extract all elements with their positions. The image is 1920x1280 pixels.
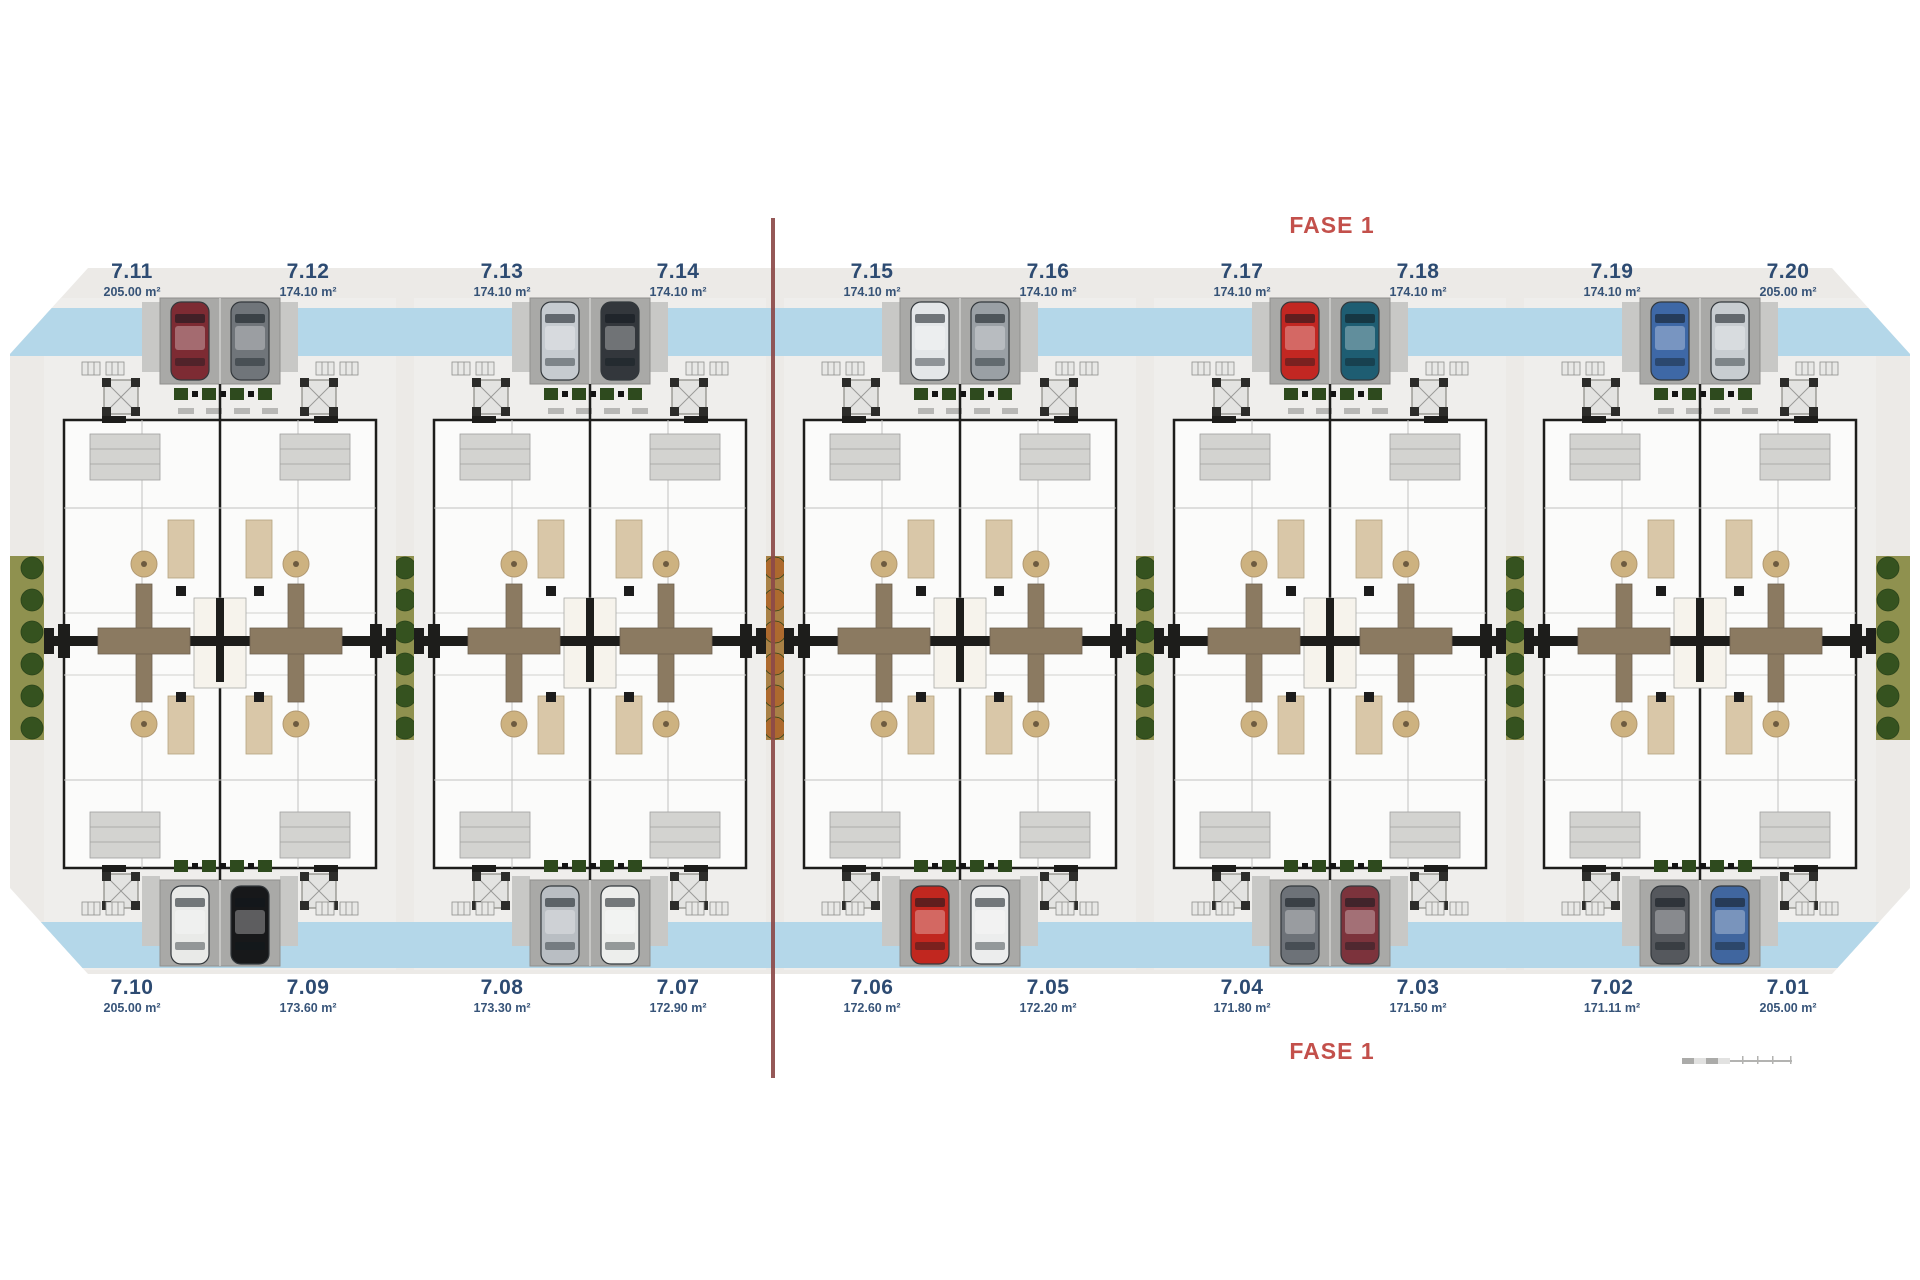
olive-landscape-strip [1506,556,1524,740]
room-furniture [650,812,720,858]
sun-lounger-icon [686,362,704,375]
sun-lounger-icon [1450,362,1468,375]
sun-lounger-icon [316,362,334,375]
room-furniture [1760,812,1830,858]
unit-area: 171.80 m² [1172,1000,1312,1017]
pergola-icon [102,378,140,416]
parasol-table-icon [283,551,309,577]
unit-area: 173.60 m² [238,1000,378,1017]
unit-label: 7.03171.50 m² [1348,976,1488,1017]
unit-label: 7.15174.10 m² [802,260,942,301]
parasol-table-icon [1393,711,1419,737]
room-furniture [830,812,900,858]
sun-lounger-icon [1562,362,1580,375]
unit-label: 7.13174.10 m² [432,260,572,301]
pergola-icon [300,378,338,416]
unit-label: 7.04171.80 m² [1172,976,1312,1017]
parasol-table-icon [1763,711,1789,737]
unit-area: 205.00 m² [1718,284,1858,301]
car-icon [1281,886,1319,964]
unit-label: 7.07172.90 m² [608,976,748,1017]
parasol-table-icon [1241,551,1267,577]
parasol-table-icon [1393,551,1419,577]
room-furniture [280,812,350,858]
sun-lounger-icon [1056,902,1074,915]
unit-number: 7.09 [238,976,378,1000]
sun-lounger-icon [106,902,124,915]
site-plan-page: 7.11205.00 m²7.12174.10 m²7.13174.10 m²7… [0,0,1920,1280]
unit-area: 205.00 m² [62,284,202,301]
sun-lounger-icon [1216,902,1234,915]
unit-number: 7.10 [62,976,202,1000]
sun-lounger-icon [1080,362,1098,375]
room-furniture [90,812,160,858]
sun-lounger-icon [1426,902,1444,915]
unit-number: 7.13 [432,260,572,284]
room-furniture [1200,812,1270,858]
sun-lounger-icon [82,902,100,915]
unit-area: 174.10 m² [238,284,378,301]
sun-lounger-icon [1820,362,1838,375]
car-icon [231,302,269,380]
car-icon [231,886,269,964]
unit-label: 7.01205.00 m² [1718,976,1858,1017]
parasol-table-icon [653,711,679,737]
room-furniture [1020,812,1090,858]
room-furniture [90,434,160,480]
room-furniture [460,812,530,858]
scale-bar [1682,1050,1802,1072]
building-block [784,268,1136,974]
sun-lounger-icon [1426,362,1444,375]
unit-area: 171.11 m² [1542,1000,1682,1017]
unit-label: 7.10205.00 m² [62,976,202,1017]
pergola-icon [1780,378,1818,416]
parasol-table-icon [871,711,897,737]
sun-lounger-icon [846,362,864,375]
unit-number: 7.15 [802,260,942,284]
unit-label: 7.14174.10 m² [608,260,748,301]
room-furniture [460,434,530,480]
unit-area: 174.10 m² [1542,284,1682,301]
sun-lounger-icon [476,902,494,915]
sun-lounger-icon [340,902,358,915]
unit-number: 7.17 [1172,260,1312,284]
sun-lounger-icon [340,362,358,375]
building-block [44,268,396,974]
unit-area: 172.20 m² [978,1000,1118,1017]
sun-lounger-icon [710,902,728,915]
sun-lounger-icon [686,902,704,915]
unit-label: 7.12174.10 m² [238,260,378,301]
car-icon [1281,302,1319,380]
sun-lounger-icon [452,902,470,915]
building-block [414,268,766,974]
car-icon [601,886,639,964]
sun-lounger-icon [452,362,470,375]
sun-lounger-icon [1820,902,1838,915]
unit-label: 7.06172.60 m² [802,976,942,1017]
pergola-icon [670,378,708,416]
pergola-icon [842,378,880,416]
parasol-table-icon [1241,711,1267,737]
car-icon [171,302,209,380]
room-furniture [1570,434,1640,480]
unit-label: 7.19174.10 m² [1542,260,1682,301]
room-furniture [1760,434,1830,480]
unit-number: 7.08 [432,976,572,1000]
car-icon [171,886,209,964]
unit-number: 7.16 [978,260,1118,284]
car-icon [1341,302,1379,380]
sun-lounger-icon [1192,362,1210,375]
car-icon [1651,886,1689,964]
site-plan [10,268,1910,974]
fase1-label-bottom: FASE 1 [1222,1038,1442,1065]
parasol-table-icon [131,711,157,737]
car-icon [1711,886,1749,964]
car-icon [541,302,579,380]
unit-area: 174.10 m² [432,284,572,301]
unit-number: 7.14 [608,260,748,284]
parasol-table-icon [131,551,157,577]
sun-lounger-icon [1562,902,1580,915]
building-block [1524,268,1876,974]
unit-number: 7.18 [1348,260,1488,284]
parasol-table-icon [1611,551,1637,577]
unit-area: 174.10 m² [1172,284,1312,301]
room-furniture [1570,812,1640,858]
fase1-label-top: FASE 1 [1222,212,1442,239]
pergola-icon [1040,378,1078,416]
sun-lounger-icon [476,362,494,375]
unit-label: 7.11205.00 m² [62,260,202,301]
unit-label: 7.18174.10 m² [1348,260,1488,301]
sun-lounger-icon [822,362,840,375]
pergola-icon [1410,378,1448,416]
sun-lounger-icon [106,362,124,375]
car-icon [1341,886,1379,964]
parasol-table-icon [283,711,309,737]
unit-number: 7.11 [62,260,202,284]
sun-lounger-icon [1450,902,1468,915]
unit-area: 172.60 m² [802,1000,942,1017]
unit-number: 7.20 [1718,260,1858,284]
unit-number: 7.07 [608,976,748,1000]
unit-area: 174.10 m² [978,284,1118,301]
sun-lounger-icon [710,362,728,375]
car-icon [541,886,579,964]
parasol-table-icon [653,551,679,577]
olive-landscape-strip [396,556,414,740]
unit-label: 7.05172.20 m² [978,976,1118,1017]
unit-area: 171.50 m² [1348,1000,1488,1017]
unit-label: 7.20205.00 m² [1718,260,1858,301]
parasol-table-icon [1023,711,1049,737]
sun-lounger-icon [316,902,334,915]
unit-area: 172.90 m² [608,1000,748,1017]
sun-lounger-icon [1586,362,1604,375]
sun-lounger-icon [1796,902,1814,915]
car-icon [971,302,1009,380]
unit-area: 173.30 m² [432,1000,572,1017]
sun-lounger-icon [1216,362,1234,375]
sun-lounger-icon [1192,902,1210,915]
unit-number: 7.06 [802,976,942,1000]
unit-label: 7.08173.30 m² [432,976,572,1017]
unit-number: 7.05 [978,976,1118,1000]
unit-area: 174.10 m² [608,284,748,301]
pergola-icon [1582,378,1620,416]
sun-lounger-icon [1056,362,1074,375]
parasol-table-icon [501,551,527,577]
car-icon [911,302,949,380]
olive-landscape-strip [1136,556,1154,740]
sun-lounger-icon [1080,902,1098,915]
car-icon [601,302,639,380]
room-furniture [650,434,720,480]
unit-label: 7.16174.10 m² [978,260,1118,301]
unit-label: 7.02171.11 m² [1542,976,1682,1017]
parasol-table-icon [501,711,527,737]
sun-lounger-icon [822,902,840,915]
unit-label: 7.17174.10 m² [1172,260,1312,301]
car-icon [911,886,949,964]
room-furniture [1020,434,1090,480]
room-furniture [280,434,350,480]
pergola-icon [1212,378,1250,416]
parasol-table-icon [871,551,897,577]
room-furniture [1200,434,1270,480]
sun-lounger-icon [1796,362,1814,375]
room-furniture [830,434,900,480]
car-icon [1711,302,1749,380]
car-icon [971,886,1009,964]
parasol-table-icon [1023,551,1049,577]
phase-divider-line [771,218,775,1078]
sun-lounger-icon [846,902,864,915]
unit-area: 205.00 m² [62,1000,202,1017]
parasol-table-icon [1611,711,1637,737]
sun-lounger-icon [82,362,100,375]
unit-area: 174.10 m² [802,284,942,301]
unit-number: 7.19 [1542,260,1682,284]
unit-label: 7.09173.60 m² [238,976,378,1017]
parasol-table-icon [1763,551,1789,577]
room-furniture [1390,812,1460,858]
car-icon [1651,302,1689,380]
orange-landscape-strip [766,556,784,740]
unit-number: 7.01 [1718,976,1858,1000]
unit-number: 7.12 [238,260,378,284]
building-block [1154,268,1506,974]
unit-number: 7.03 [1348,976,1488,1000]
unit-area: 174.10 m² [1348,284,1488,301]
room-furniture [1390,434,1460,480]
unit-number: 7.02 [1542,976,1682,1000]
pergola-icon [472,378,510,416]
sun-lounger-icon [1586,902,1604,915]
unit-number: 7.04 [1172,976,1312,1000]
unit-area: 205.00 m² [1718,1000,1858,1017]
